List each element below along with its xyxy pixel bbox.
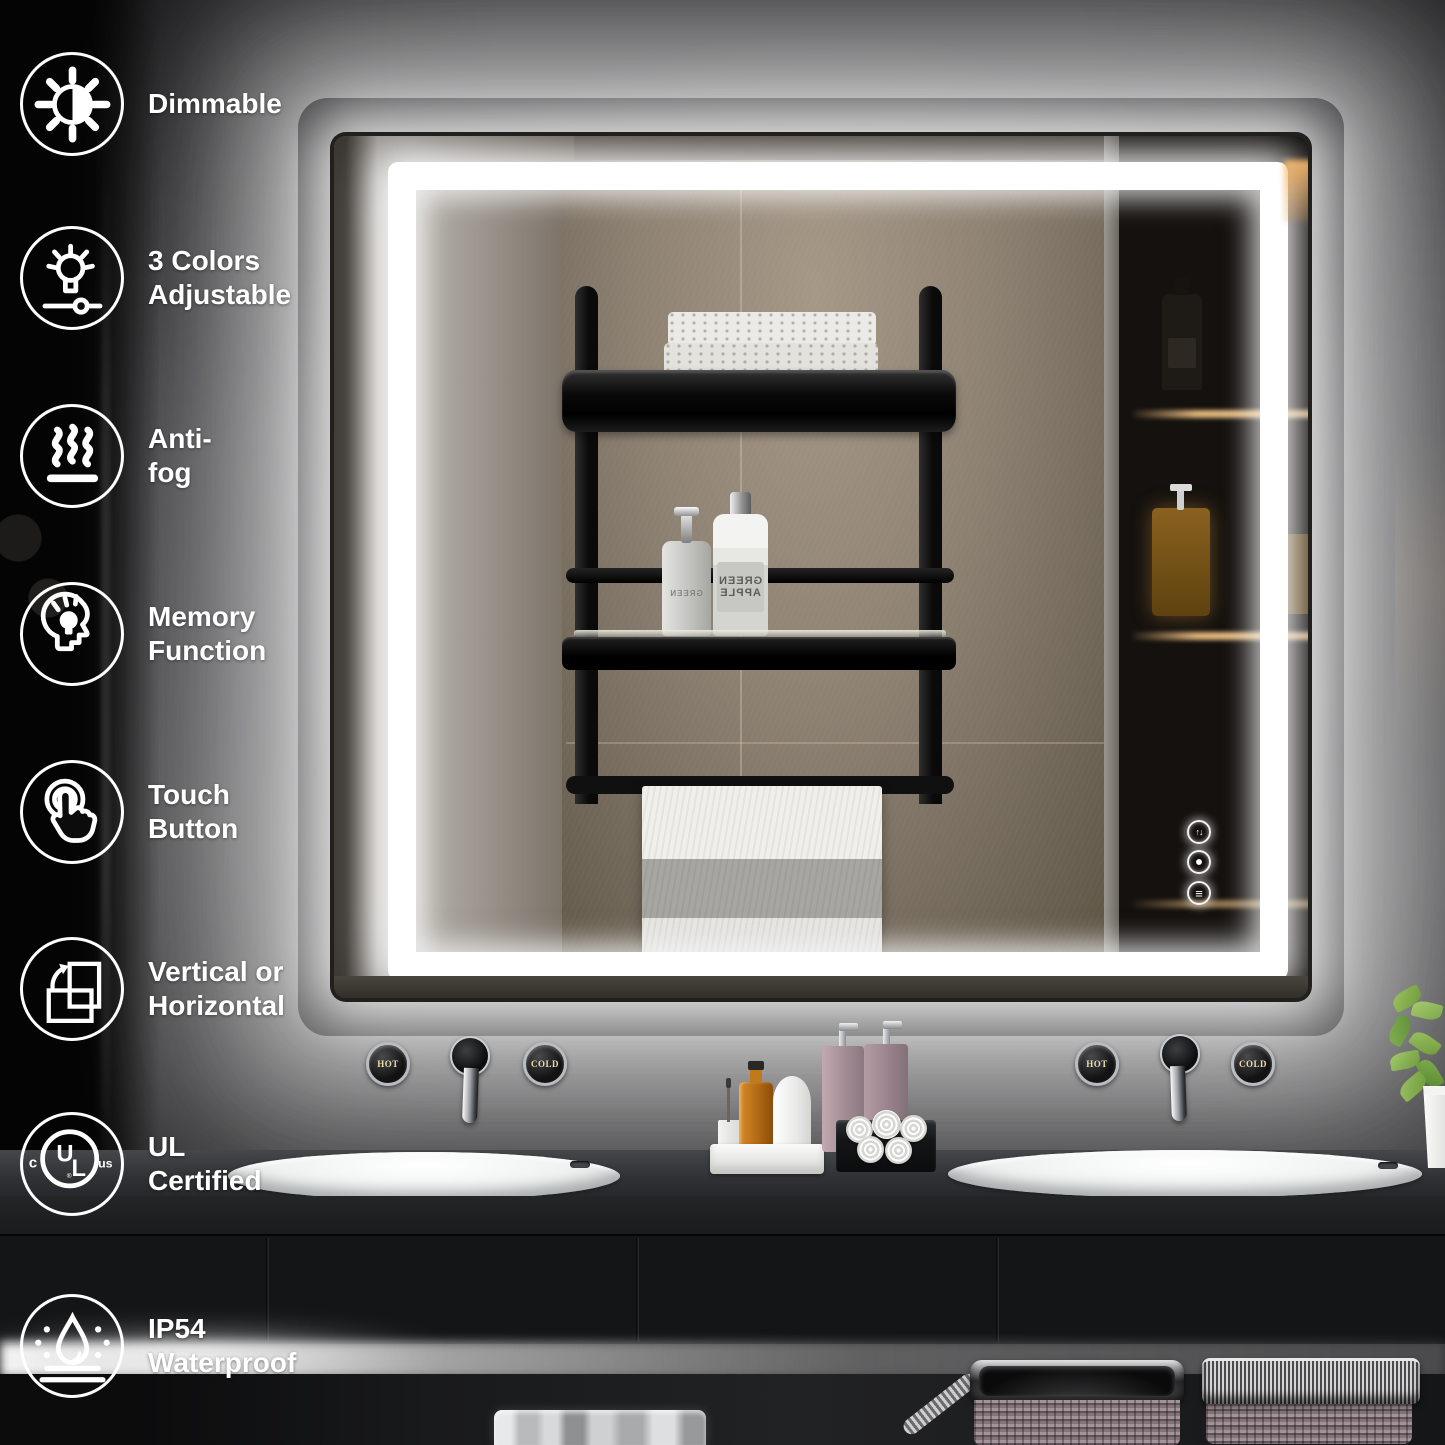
white-vanity-tray [710,1144,824,1174]
left-cold-knob: COLD [523,1042,567,1086]
counter-front-edge [0,1196,1445,1234]
dispenser-pump-spout [839,1023,858,1031]
brightness-touch-button[interactable]: ≡ [1187,881,1211,905]
makeup-brush [727,1086,730,1122]
left-hot-knob: HOT [366,1042,410,1086]
warm-wall-reflection [1395,430,1445,760]
feature-label: 3 Colors Adjustable [148,244,291,312]
basket-woven-body [1206,1398,1412,1444]
white-lotion-bottle [773,1076,811,1152]
hot-label: HOT [1086,1059,1108,1069]
dispenser-pump [883,1028,890,1044]
feature-label: IP54 Waterproof [148,1312,296,1380]
sink-overflow-hole [1378,1162,1398,1169]
basket-liner [979,1366,1175,1396]
feature-label: Touch Button [148,778,238,846]
memory-function-head-icon [20,582,124,686]
defog-arrows-icon: ↑↓ [1196,827,1203,837]
feature-label: Dimmable [148,87,282,121]
product-feature-scene: GREEN GREEN APPLE ↑↓ ≡ [0,0,1445,1445]
right-hot-knob: HOT [1075,1042,1119,1086]
dimmable-sun-icon [20,52,124,156]
anti-fog-steam-icon [20,404,124,508]
touch-button-hand-icon [20,760,124,864]
lidded-laundry-basket [1202,1358,1420,1445]
open-laundry-basket [970,1360,1184,1445]
basket-woven-body [974,1400,1180,1445]
defog-touch-button[interactable]: ↑↓ [1187,820,1211,844]
glass-stool [494,1410,706,1445]
hot-label: HOT [377,1059,399,1069]
drawer-seam [996,1238,999,1342]
vertical-horizontal-rotate-icon [20,937,124,1041]
rolled-towel [885,1137,912,1164]
rolled-towel [857,1136,884,1163]
amber-edge-glint [1284,160,1312,222]
led-mirror: GREEN GREEN APPLE ↑↓ ≡ [330,132,1312,1002]
ul-prefix-c: c [28,1154,36,1171]
ul-letter-l: L [71,1154,86,1181]
basket-lid [1202,1358,1420,1404]
ul-certification-mark-icon: U L c us ® [20,1112,124,1216]
dispenser-pump [839,1030,846,1046]
reflection-counter-band [334,976,1312,1002]
right-faucet-spout [1170,1066,1187,1121]
right-sink [948,1150,1422,1198]
sink-overflow-hole [570,1161,590,1168]
power-touch-button[interactable] [1187,850,1211,874]
amber-glass-bottle [739,1082,773,1152]
color-temperature-bulb-icon [20,226,124,330]
right-cold-knob: COLD [1231,1042,1275,1086]
drawer-seam [636,1238,639,1342]
left-faucet-spout [462,1068,479,1123]
led-light-frame [388,162,1288,980]
feature-label: Anti-fog [148,422,212,490]
ul-registered-mark: ® [66,1171,71,1179]
cold-label: COLD [531,1059,559,1069]
feature-label: Memory Function [148,600,266,668]
brightness-lines-icon: ≡ [1195,887,1203,900]
rolled-towel [872,1110,901,1139]
feature-label: UL Certified [148,1130,262,1198]
dispenser-pump-spout [883,1021,902,1029]
left-sink [228,1152,620,1200]
cold-label: COLD [1239,1059,1267,1069]
ul-suffix-us: us [98,1156,113,1170]
feature-label: Vertical or Horizontal [148,955,285,1023]
ip54-waterproof-droplet-icon [20,1294,124,1398]
